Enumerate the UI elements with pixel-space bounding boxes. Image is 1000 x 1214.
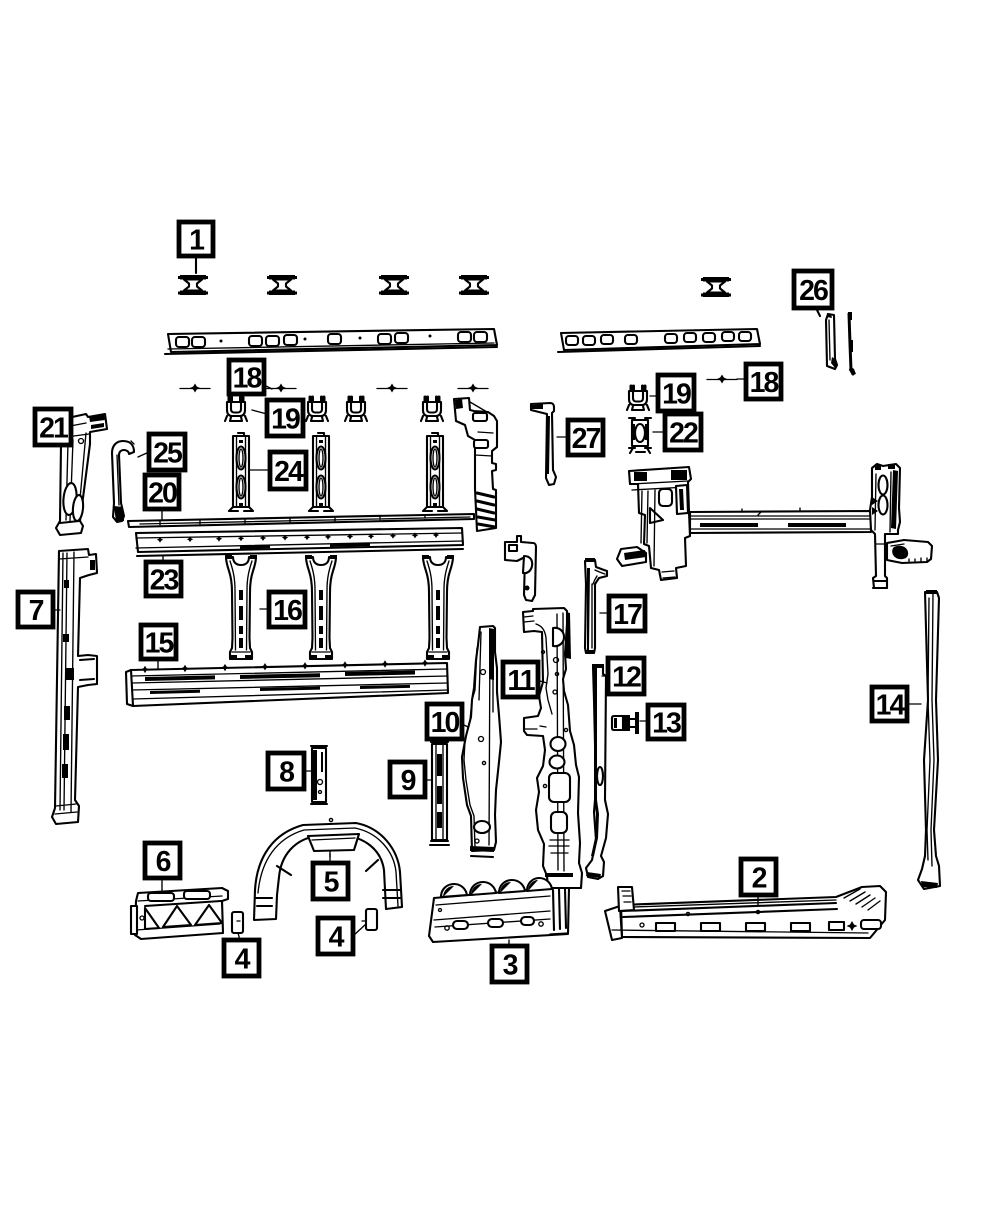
svg-text:2: 2	[752, 862, 767, 894]
svg-text:24: 24	[274, 456, 304, 488]
svg-text:19: 19	[271, 403, 300, 435]
svg-text:27: 27	[572, 423, 601, 455]
svg-text:7: 7	[29, 595, 44, 627]
svg-text:22: 22	[669, 417, 698, 449]
svg-text:5: 5	[324, 866, 340, 898]
svg-text:9: 9	[401, 765, 416, 797]
svg-text:4: 4	[329, 921, 345, 953]
svg-text:18: 18	[233, 362, 262, 394]
svg-text:21: 21	[39, 412, 69, 444]
svg-text:11: 11	[507, 665, 535, 697]
svg-text:25: 25	[153, 437, 183, 469]
svg-text:15: 15	[145, 627, 175, 659]
svg-text:8: 8	[279, 756, 294, 788]
svg-text:16: 16	[273, 595, 302, 627]
svg-text:1: 1	[189, 224, 205, 256]
svg-text:18: 18	[750, 367, 779, 399]
svg-text:14: 14	[876, 689, 906, 721]
svg-text:6: 6	[156, 846, 171, 878]
svg-text:12: 12	[612, 661, 641, 693]
svg-text:13: 13	[652, 707, 681, 739]
svg-text:10: 10	[431, 707, 460, 739]
svg-text:19: 19	[662, 378, 691, 410]
svg-text:3: 3	[503, 949, 518, 981]
svg-text:20: 20	[148, 477, 177, 509]
svg-text:4: 4	[235, 943, 251, 975]
svg-text:26: 26	[799, 275, 828, 307]
svg-text:23: 23	[150, 564, 179, 596]
svg-text:17: 17	[613, 599, 642, 631]
